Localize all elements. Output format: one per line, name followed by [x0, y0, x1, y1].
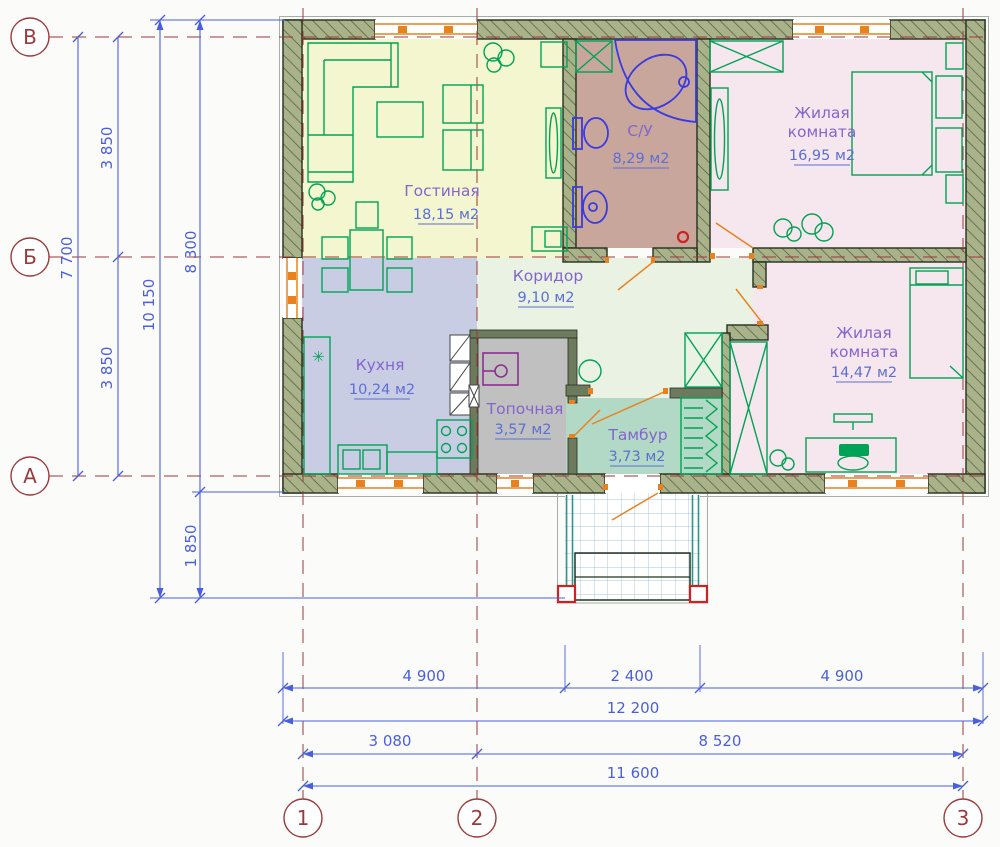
dimensions-bottom: 4 900 2 400 4 900 12 200 3 080 8 520 11 …: [278, 645, 988, 791]
axis-letter: А: [23, 464, 37, 488]
room-corridor-label: Коридор: [513, 267, 583, 285]
dimension-label: 3 080: [369, 732, 412, 750]
room-bathroom-fill: [576, 39, 697, 248]
window-marker-living-top: [375, 20, 477, 39]
room-living-area: 18,15 м2: [413, 207, 479, 223]
fridge-cabinet-icon: [450, 335, 470, 415]
dimension-label: 3 850: [98, 347, 116, 390]
dimension-label: 1 850: [182, 525, 200, 568]
axis-number: 1: [297, 806, 310, 830]
room-bathroom-label: С/У: [627, 122, 653, 140]
dimension-label: 8 300: [182, 231, 200, 274]
axis-letter: Б: [23, 245, 37, 269]
dimension-label: 10 150: [140, 279, 158, 332]
dimension-label: 4 900: [821, 667, 864, 685]
entrance-door-gap: [605, 474, 660, 493]
room-bedroom1-fill: [710, 39, 966, 248]
axis-number: 3: [957, 806, 970, 830]
dimension-label: 2 400: [611, 667, 654, 685]
room-kitchen-label: Кухня: [356, 356, 405, 374]
dimension-label: 3 850: [98, 127, 116, 170]
svg-text:комната: комната: [830, 343, 899, 361]
window-marker-boiler-bottom: [497, 474, 533, 493]
floor-plan-canvas: ✳: [0, 0, 1000, 847]
room-bedroom1-label: Жилая: [794, 104, 850, 122]
porch-tile-floor: [565, 493, 700, 600]
window-marker-kitchen-left: [283, 258, 302, 318]
room-bedroom2-area: 14,47 м2: [831, 365, 897, 381]
axis-number: 2: [471, 806, 484, 830]
kitchen-sink-icon: ✳: [312, 348, 325, 366]
floor-plan-page: ✳: [0, 0, 1000, 847]
dimension-label: 7 700: [58, 237, 76, 280]
porch: [558, 493, 707, 602]
room-boiler-area: 3,57 м2: [494, 422, 551, 438]
dimension-label: 11 600: [607, 764, 660, 782]
room-bedroom1-area: 16,95 м2: [789, 148, 855, 164]
window-marker-kitchen-bottom: [338, 474, 423, 493]
room-bathroom-area: 8,29 м2: [612, 151, 669, 167]
porch-column: [690, 586, 707, 602]
room-boiler-label: Топочная: [486, 400, 564, 418]
dimension-label: 8 520: [699, 732, 742, 750]
room-kitchen-area: 10,24 м2: [349, 382, 415, 398]
room-living-label: Гостиная: [404, 182, 480, 200]
room-bedroom2-label: Жилая: [836, 324, 892, 342]
room-corridor-area: 9,10 м2: [517, 290, 574, 306]
dimension-ticks: [73, 15, 205, 603]
window-marker-bedroom2-bottom: [825, 474, 928, 493]
svg-text:комната: комната: [788, 123, 857, 141]
room-living-fill: [302, 39, 563, 258]
dimension-label: 12 200: [607, 699, 660, 717]
dimension-label: 4 900: [403, 667, 446, 685]
vent-hatch-icon: [469, 385, 479, 407]
dimension-arrows: [157, 20, 204, 598]
room-vestibule-area: 3,73 м2: [608, 449, 665, 465]
window-marker-bedroom1-top: [793, 20, 890, 39]
axis-letter: В: [23, 25, 37, 49]
room-vestibule-label: Тамбур: [607, 426, 667, 444]
porch-column: [558, 586, 575, 602]
